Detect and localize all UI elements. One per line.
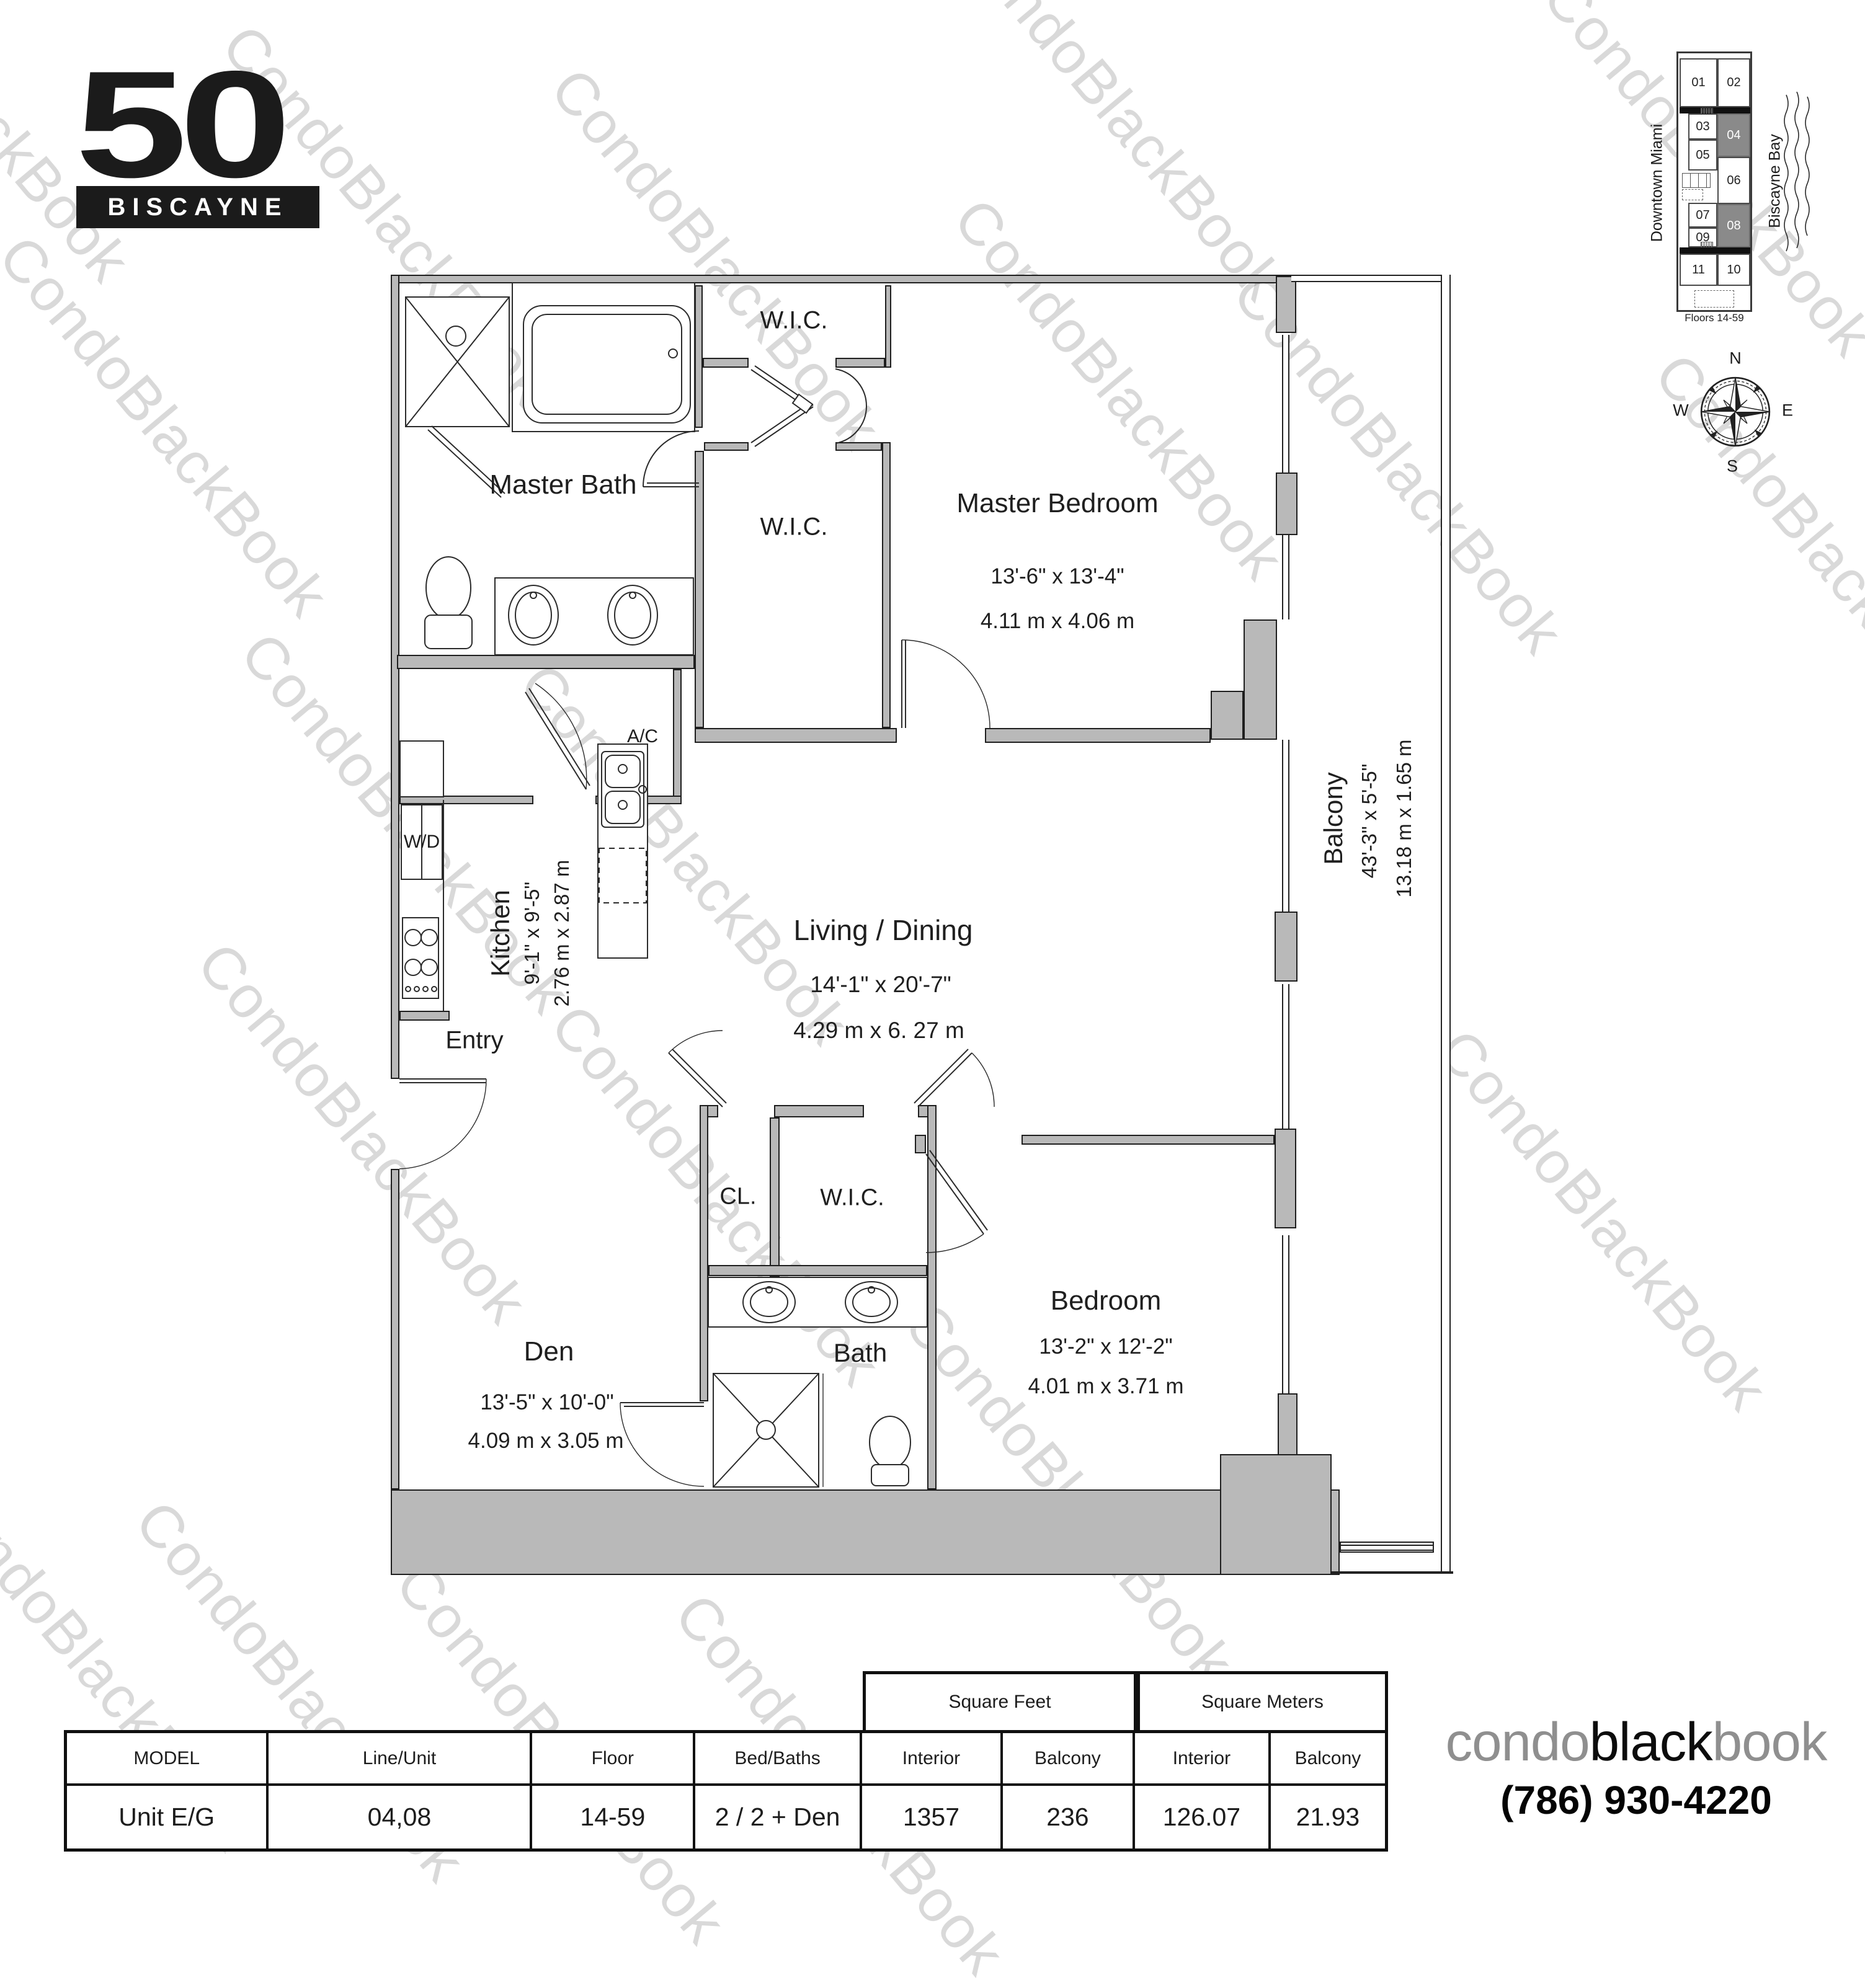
label-living-dining: Living / Dining [794,913,973,947]
water-waves-icon [1780,92,1817,278]
master-shower [406,297,509,497]
col-interior-sqm: Interior [1135,1733,1271,1783]
keyplan-unit-10: 10 [1717,254,1750,286]
label-living-dim-m: 4.29 m x 6. 27 m [793,1018,964,1044]
col-line-unit: Line/Unit [269,1733,532,1783]
compass-north-label: N [1729,349,1742,368]
col-model: MODEL [67,1733,269,1783]
watermark: CondoBlackBook [940,0,1297,314]
bath2-door [620,1403,704,1486]
keyplan-unit-04-highlighted: 04 [1717,113,1750,157]
unit-spec-table: MODEL Line/Unit Floor Bed/Baths Interior… [64,1730,1388,1852]
col-bed-baths: Bed/Baths [695,1733,862,1783]
keyplan-unit-11: 11 [1680,254,1717,286]
brand-condo: condo [1446,1712,1590,1772]
value-interior-sqft: 1357 [862,1786,1003,1848]
cl-closet-door [669,1031,726,1107]
keyplan-caption: Floors 14-59 [1676,312,1752,324]
floor-plan: Master Bath W.I.C. W.I.C. Master Bedroom… [391,273,1454,1575]
label-wic2: W.I.C. [760,513,828,541]
compass-west-label: W [1673,401,1688,420]
value-bed-baths: 2 / 2 + Den [695,1786,862,1848]
bedroom2-door [926,1150,987,1253]
compass-south-label: S [1727,457,1738,476]
closet-double-doors [751,366,866,446]
table-group-header-sqm: Square Meters [1137,1671,1388,1733]
col-floor: Floor [532,1733,695,1783]
value-model: Unit E/G [67,1786,269,1848]
col-balcony-sqm: Balcony [1271,1733,1385,1783]
keyplan-unit-03: 03 [1688,113,1717,140]
label-bedroom2-dim-m: 4.01 m x 3.71 m [1028,1374,1184,1399]
building-logo-name: BISCAYNE [76,186,319,228]
watermark: CondoBlackBook [0,223,342,630]
master-toilet [425,557,472,649]
label-ac: A/C [627,726,658,747]
keyplan-unit-07: 07 [1688,203,1717,228]
label-master-bath: Master Bath [489,469,636,500]
keyplan-elevators-icon [1682,173,1711,188]
label-balcony-dim-ft: 43'-3" x 5'-5" [1358,764,1381,879]
keyplan-unit-05: 05 [1688,140,1717,171]
label-kitchen: Kitchen [486,890,515,977]
condoblackbook-logo: condoblackbook [1417,1711,1855,1773]
label-wic3: W.I.C. [820,1185,884,1212]
value-balcony-sqft: 236 [1003,1786,1135,1848]
phone-number: (786) 930-4220 [1417,1777,1855,1823]
label-bedroom2-dim-ft: 13'-2" x 12'-2" [1039,1334,1172,1359]
table-data-row: Unit E/G 04,08 14-59 2 / 2 + Den 1357 23… [67,1786,1385,1848]
label-wd: W/D [404,832,440,853]
master-bedroom-door [902,640,990,728]
label-den: Den [524,1336,574,1367]
value-interior-sqm: 126.07 [1135,1786,1271,1848]
laundry-closet-door [525,683,590,789]
compass-rose-icon [1699,376,1771,448]
bath2-toilet [870,1416,910,1486]
label-kitchen-dim-m: 2.76 m x 2.87 m [550,860,574,1007]
table-group-header-sqft: Square Feet [863,1671,1137,1733]
value-floor: 14-59 [532,1786,695,1848]
label-cl: CL. [719,1184,756,1210]
kitchen-cooktop [403,918,438,998]
master-vanity [495,578,693,655]
label-bath2: Bath [834,1338,887,1368]
keyplan-divider [1680,247,1750,254]
label-entry: Entry [445,1027,503,1055]
table-header-row: MODEL Line/Unit Floor Bed/Baths Interior… [67,1733,1385,1786]
label-balcony: Balcony [1319,772,1348,864]
label-wic1: W.I.C. [760,307,828,335]
wic3-closet-door [914,1049,994,1107]
keyplan-unit-02: 02 [1717,58,1750,107]
label-balcony-dim-m: 13.18 m x 1.65 m [1392,740,1416,898]
label-kitchen-dim-ft: 9'-1" x 9'-5" [520,882,544,985]
kitchen-island [598,744,648,958]
brand-black: black [1590,1712,1712,1772]
master-bath-door [643,431,699,487]
keyplan-lobby-outline [1694,290,1734,308]
label-master-bedroom: Master Bedroom [956,488,1158,519]
label-bedroom2: Bedroom [1051,1285,1162,1316]
label-living-dim-ft: 14'-1" x 20'-7" [810,972,951,998]
col-interior-sqft: Interior [862,1733,1003,1783]
brand-book: book [1712,1712,1827,1772]
value-line-unit: 04,08 [269,1786,532,1848]
keyplan-core-icon [1682,189,1703,200]
master-tub [512,283,695,432]
bath2-vanity [708,1277,927,1327]
compass-east-label: E [1782,401,1793,420]
building-key-plan: 01 02 03 04 05 06 07 08 09 11 10 [1676,51,1752,312]
building-logo-number: 50 [75,60,283,189]
keyplan-unit-01: 01 [1680,58,1717,107]
label-den-dim-m: 4.09 m x 3.05 m [468,1429,624,1453]
keyplan-unit-06: 06 [1717,157,1750,204]
keyplan-divider [1680,107,1750,113]
keyplan-unit-08-highlighted: 08 [1717,204,1750,247]
col-balcony-sqft: Balcony [1003,1733,1135,1783]
label-master-bedroom-dim-ft: 13'-6" x 13'-4" [990,564,1124,589]
entry-door [399,1079,486,1169]
label-master-bedroom-dim-m: 4.11 m x 4.06 m [981,609,1134,634]
bath2-shower [713,1373,823,1487]
watermark: CondoBlackBook [1424,1017,1781,1424]
keyplan-downtown-label: Downtown Miami [1649,124,1667,242]
label-den-dim-ft: 13'-5" x 10'-0" [480,1390,613,1415]
value-balcony-sqm: 21.93 [1271,1786,1385,1848]
